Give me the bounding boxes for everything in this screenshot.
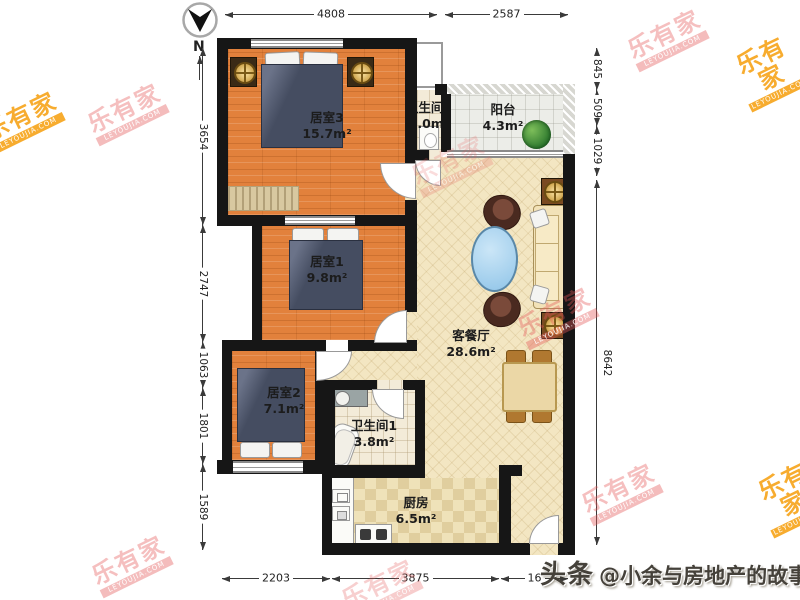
room-area: 9.8m² bbox=[307, 270, 348, 286]
watermark-subtext: LEYOUJIA.COM bbox=[590, 484, 664, 526]
nightstand-icon bbox=[347, 57, 374, 87]
room-label-bedroom1: 居室1 9.8m² bbox=[307, 254, 348, 287]
appliance-icon bbox=[332, 506, 350, 521]
dim-top-4808: 4808 bbox=[225, 14, 437, 15]
room-name: 卫生间1 bbox=[351, 418, 397, 434]
dim-left-2747: 2747 bbox=[202, 225, 203, 342]
wall bbox=[499, 465, 511, 555]
wall bbox=[322, 465, 425, 478]
watermark-text: 乐有家 bbox=[726, 30, 800, 102]
room-label-bedroom2: 居室2 7.1m² bbox=[264, 385, 305, 418]
room-area: 3.8m² bbox=[351, 434, 397, 450]
balcony-window-wall bbox=[563, 84, 575, 154]
room-label-living-dining: 客餐厅 28.6m² bbox=[446, 328, 495, 361]
pillow-icon bbox=[272, 442, 302, 458]
window bbox=[251, 39, 343, 48]
dim-value: 2587 bbox=[490, 7, 524, 20]
watermark: 乐有家 LEYOUJIA.COM bbox=[0, 89, 66, 155]
watermark-text: 乐有家 bbox=[578, 461, 659, 517]
room-area: 6.5m² bbox=[396, 511, 437, 527]
dim-right-845: 845 bbox=[596, 48, 597, 90]
wall bbox=[405, 200, 417, 312]
dim-right-509: 509 bbox=[596, 90, 597, 126]
room-name: 居室2 bbox=[264, 385, 305, 401]
room-label-balcony: 阳台 4.3m² bbox=[483, 102, 524, 135]
dim-value: 3875 bbox=[399, 571, 433, 584]
balcony-window-wall bbox=[447, 84, 563, 94]
watermark-text: 乐有家 bbox=[748, 456, 800, 528]
dim-value: 1589 bbox=[197, 491, 209, 524]
watermark-text: 乐有家 bbox=[84, 81, 165, 137]
wall bbox=[217, 38, 228, 226]
dim-left-1801: 1801 bbox=[202, 388, 203, 464]
room-area: 4.3m² bbox=[483, 118, 524, 134]
wall bbox=[322, 465, 332, 555]
dim-bottom-3875: 3875 bbox=[332, 578, 499, 579]
room-name: 居室1 bbox=[307, 254, 348, 270]
room-name: 阳台 bbox=[483, 102, 524, 118]
nightstand-icon bbox=[230, 57, 257, 87]
dim-value: 1801 bbox=[197, 410, 209, 443]
watermark-subtext: LEYOUJIA.COM bbox=[100, 556, 174, 598]
sink-icon bbox=[330, 387, 368, 407]
dining-table-icon bbox=[502, 362, 557, 412]
dim-right-8642: 8642 bbox=[596, 180, 597, 545]
dim-value: 4808 bbox=[314, 7, 348, 20]
room-label-kitchen: 厨房 6.5m² bbox=[396, 495, 437, 528]
room-area: 28.6m² bbox=[446, 344, 495, 360]
wall bbox=[252, 215, 262, 351]
wall bbox=[222, 340, 232, 474]
dim-value: 845 bbox=[591, 56, 603, 82]
watermark-subtext: LEYOUJIA.COM bbox=[0, 112, 66, 154]
watermark: 乐有家 LEYOUJIA.COM bbox=[624, 7, 709, 73]
door-gap bbox=[429, 150, 441, 160]
watermark-text: 乐有家 bbox=[88, 533, 169, 589]
watermark: 乐有家 LEYOUJIA.COM bbox=[84, 81, 169, 147]
dim-value: 509 bbox=[591, 95, 603, 121]
compass-icon bbox=[181, 1, 219, 39]
lamp-icon bbox=[351, 62, 373, 84]
dim-value: 3654 bbox=[197, 120, 209, 153]
watermark-text: 乐有家 bbox=[0, 89, 61, 145]
room-area: 15.7m² bbox=[302, 126, 351, 142]
dim-left-1589: 1589 bbox=[202, 464, 203, 550]
room-name: 居室3 bbox=[302, 110, 351, 126]
watermark: 乐有家 LEYOUJIA.COM bbox=[88, 533, 173, 599]
wall bbox=[441, 88, 451, 152]
stove-icon bbox=[355, 524, 392, 544]
room-area: 7.1m² bbox=[264, 401, 305, 417]
watermark-text: 乐有家 bbox=[624, 7, 705, 63]
dim-value: 1063 bbox=[197, 349, 209, 382]
wall bbox=[222, 340, 315, 351]
wall bbox=[415, 380, 425, 478]
watermark-subtext: LEYOUJIA.COM bbox=[96, 104, 170, 146]
watermark-subtext: LEYOUJIA.COM bbox=[770, 501, 800, 538]
pillow-icon bbox=[240, 442, 270, 458]
toutiao-logo: 头条 bbox=[540, 560, 594, 590]
watermark-subtext: LEYOUJIA.COM bbox=[748, 75, 800, 112]
room-name: 客餐厅 bbox=[446, 328, 495, 344]
dim-left-3654: 3654 bbox=[202, 48, 203, 225]
window bbox=[233, 461, 303, 473]
dim-value: 2203 bbox=[259, 571, 293, 584]
wall bbox=[563, 150, 575, 555]
wall bbox=[325, 380, 335, 474]
watermark: 乐有家 LEYOUJIA.COM bbox=[726, 30, 800, 112]
plant-icon bbox=[522, 120, 551, 149]
dim-value: 2747 bbox=[197, 267, 209, 300]
dim-value: 8642 bbox=[601, 346, 613, 379]
window bbox=[285, 216, 355, 225]
room-label-bathroom1: 卫生间1 3.8m² bbox=[351, 418, 397, 451]
credit-handle: @小余与房地产的故事 bbox=[599, 564, 800, 588]
appliance-icon bbox=[332, 489, 350, 503]
rug-icon bbox=[227, 186, 299, 211]
room-label-bedroom3: 居室3 15.7m² bbox=[302, 110, 351, 143]
dim-top-2587: 2587 bbox=[445, 14, 568, 15]
balcony-sliding-door bbox=[447, 150, 563, 158]
floor-plan: N bbox=[0, 0, 800, 600]
dim-left-1063: 1063 bbox=[202, 342, 203, 388]
watermark: 乐有家 LEYOUJIA.COM bbox=[748, 456, 800, 538]
watermark: 乐有家 LEYOUJIA.COM bbox=[578, 461, 663, 527]
wall bbox=[405, 38, 417, 165]
room-name: 厨房 bbox=[396, 495, 437, 511]
credit-line: 头条 @小余与房地产的故事 bbox=[540, 554, 800, 591]
north-arrow-icon bbox=[199, 56, 200, 80]
lamp-icon bbox=[234, 62, 256, 84]
watermark-subtext: LEYOUJIA.COM bbox=[636, 30, 710, 72]
dim-value: 1029 bbox=[591, 135, 603, 168]
coffee-table-icon bbox=[471, 226, 518, 292]
dim-bottom-2203: 2203 bbox=[222, 578, 330, 579]
dim-right-1029: 1029 bbox=[596, 126, 597, 176]
